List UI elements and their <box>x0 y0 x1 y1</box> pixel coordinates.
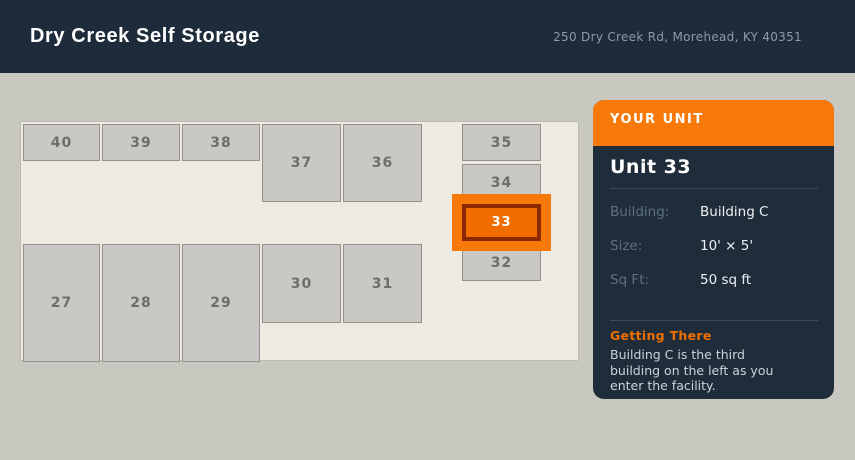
facility-address: 250 Dry Creek Rd, Morehead, KY 40351 <box>553 30 802 44</box>
storage-unit-40[interactable]: 40 <box>23 124 100 161</box>
detail-row-building: Building: Building C <box>610 204 818 220</box>
app-title: Dry Creek Self Storage <box>30 25 260 48</box>
your-unit-panel-body: Unit 33 Building: Building C Size: 10' ×… <box>593 146 834 394</box>
storage-unit-39[interactable]: 39 <box>102 124 180 161</box>
storage-unit-28[interactable]: 28 <box>102 244 180 362</box>
detail-row-sqft: Sq Ft: 50 sq ft <box>610 272 818 288</box>
your-unit-panel: YOUR UNIT Unit 33 Building: Building C S… <box>593 100 834 399</box>
storage-unit-32[interactable]: 32 <box>462 244 541 281</box>
storage-unit-31[interactable]: 31 <box>343 244 422 323</box>
storage-unit-37[interactable]: 37 <box>262 124 341 202</box>
building-value: Building C <box>700 204 768 220</box>
storage-unit-36[interactable]: 36 <box>343 124 422 202</box>
sqft-label: Sq Ft: <box>610 272 700 288</box>
storage-unit-33-selected[interactable]: 33 <box>462 204 541 241</box>
your-unit-panel-header: YOUR UNIT <box>593 100 834 146</box>
storage-unit-30[interactable]: 30 <box>262 244 341 323</box>
unit-title: Unit 33 <box>610 156 818 178</box>
sqft-value: 50 sq ft <box>700 272 751 288</box>
storage-unit-27[interactable]: 27 <box>23 244 100 362</box>
getting-there-text: Building C is the third building on the … <box>610 347 782 394</box>
storage-unit-29[interactable]: 29 <box>182 244 260 362</box>
storage-unit-35[interactable]: 35 <box>462 124 541 161</box>
building-label: Building: <box>610 204 700 220</box>
detail-row-size: Size: 10' × 5' <box>610 238 818 254</box>
getting-there-title: Getting There <box>610 328 818 343</box>
size-label: Size: <box>610 238 700 254</box>
unit-details: Building: Building C Size: 10' × 5' Sq F… <box>610 204 818 288</box>
size-value: 10' × 5' <box>700 238 753 254</box>
storage-unit-34[interactable]: 34 <box>462 164 541 201</box>
your-unit-label: YOUR UNIT <box>610 112 704 127</box>
app-header: Dry Creek Self Storage 250 Dry Creek Rd,… <box>0 0 855 73</box>
facility-map: 4039383736353433322728293031 <box>20 121 579 361</box>
divider <box>610 320 818 321</box>
divider <box>610 188 818 189</box>
storage-unit-38[interactable]: 38 <box>182 124 260 161</box>
